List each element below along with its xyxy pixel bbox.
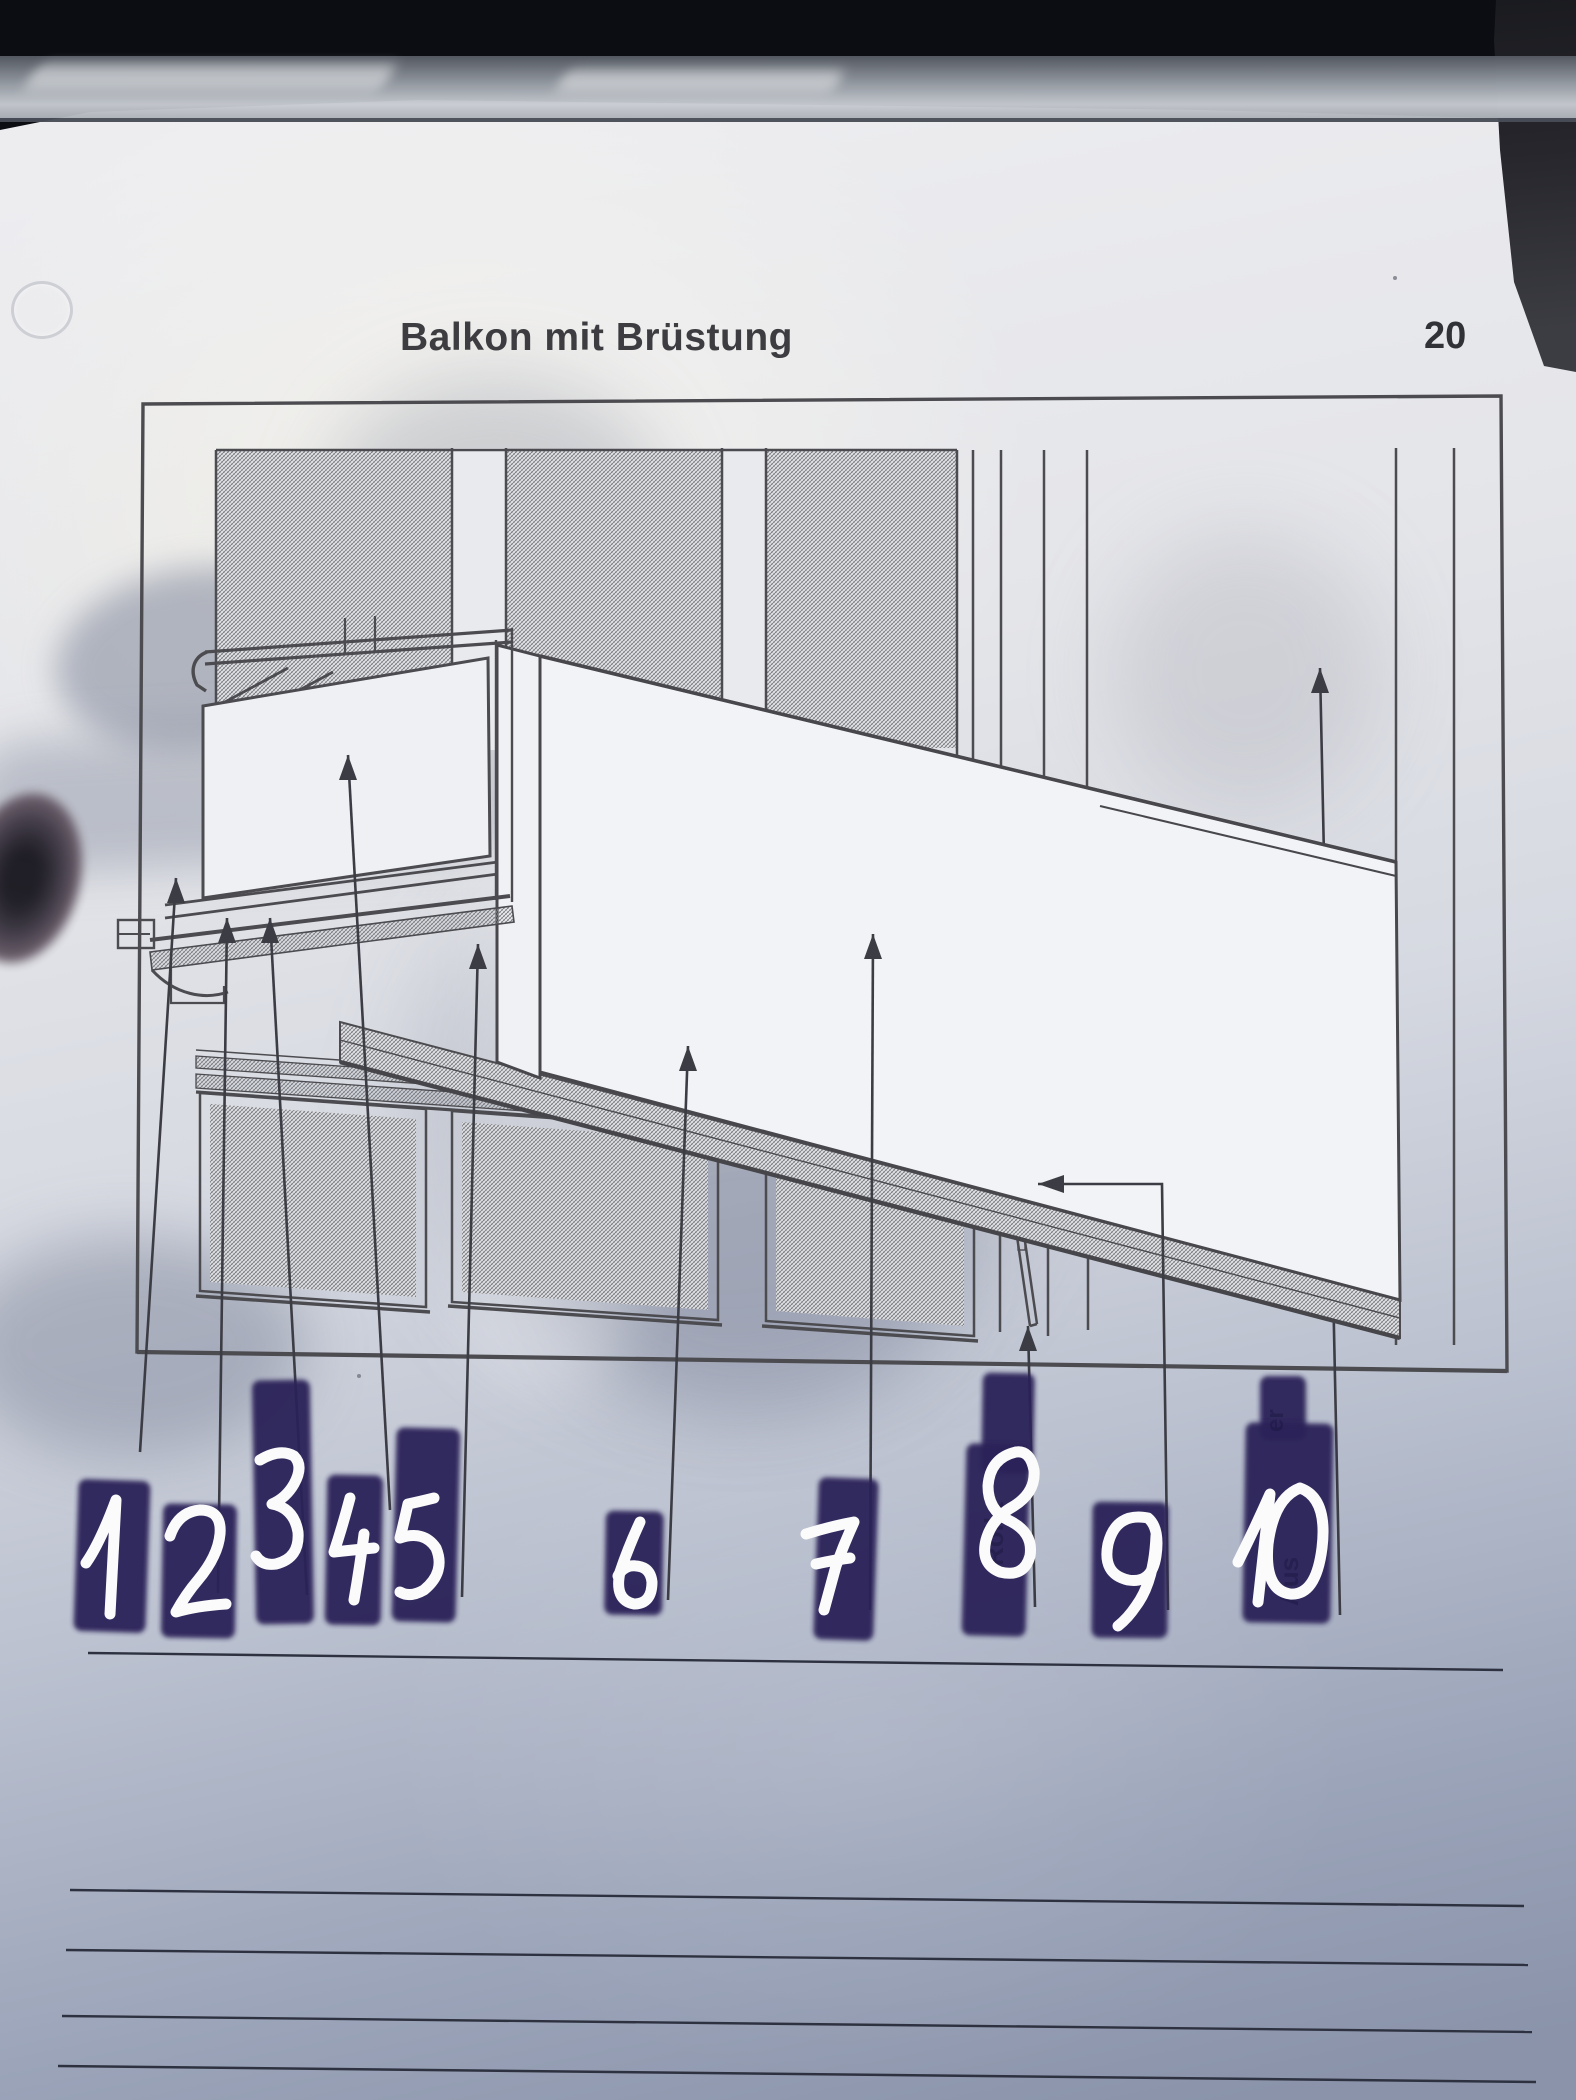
hole-punch-ring [11,281,73,339]
writing-line [62,2016,1532,2032]
ghost-text-10: er [1262,1409,1289,1432]
page-title: Balkon mit Brüstung [400,316,793,360]
paper-speck [1393,276,1397,280]
writing-line [66,1950,1528,1965]
balcony-diagram: RollaAuser [0,0,1576,2100]
plastic-sleeve-edge [0,56,1576,122]
paper-speck [357,1374,361,1378]
page-number: 20 [1424,315,1466,358]
writing-line [58,2066,1536,2082]
sleeve-glint [22,64,397,90]
writing-line [70,1890,1524,1906]
handwritten-number-7 [816,1558,850,1564]
sleeve-glint [555,70,845,92]
writing-lines [58,1653,1536,2082]
writing-line [88,1653,1503,1670]
